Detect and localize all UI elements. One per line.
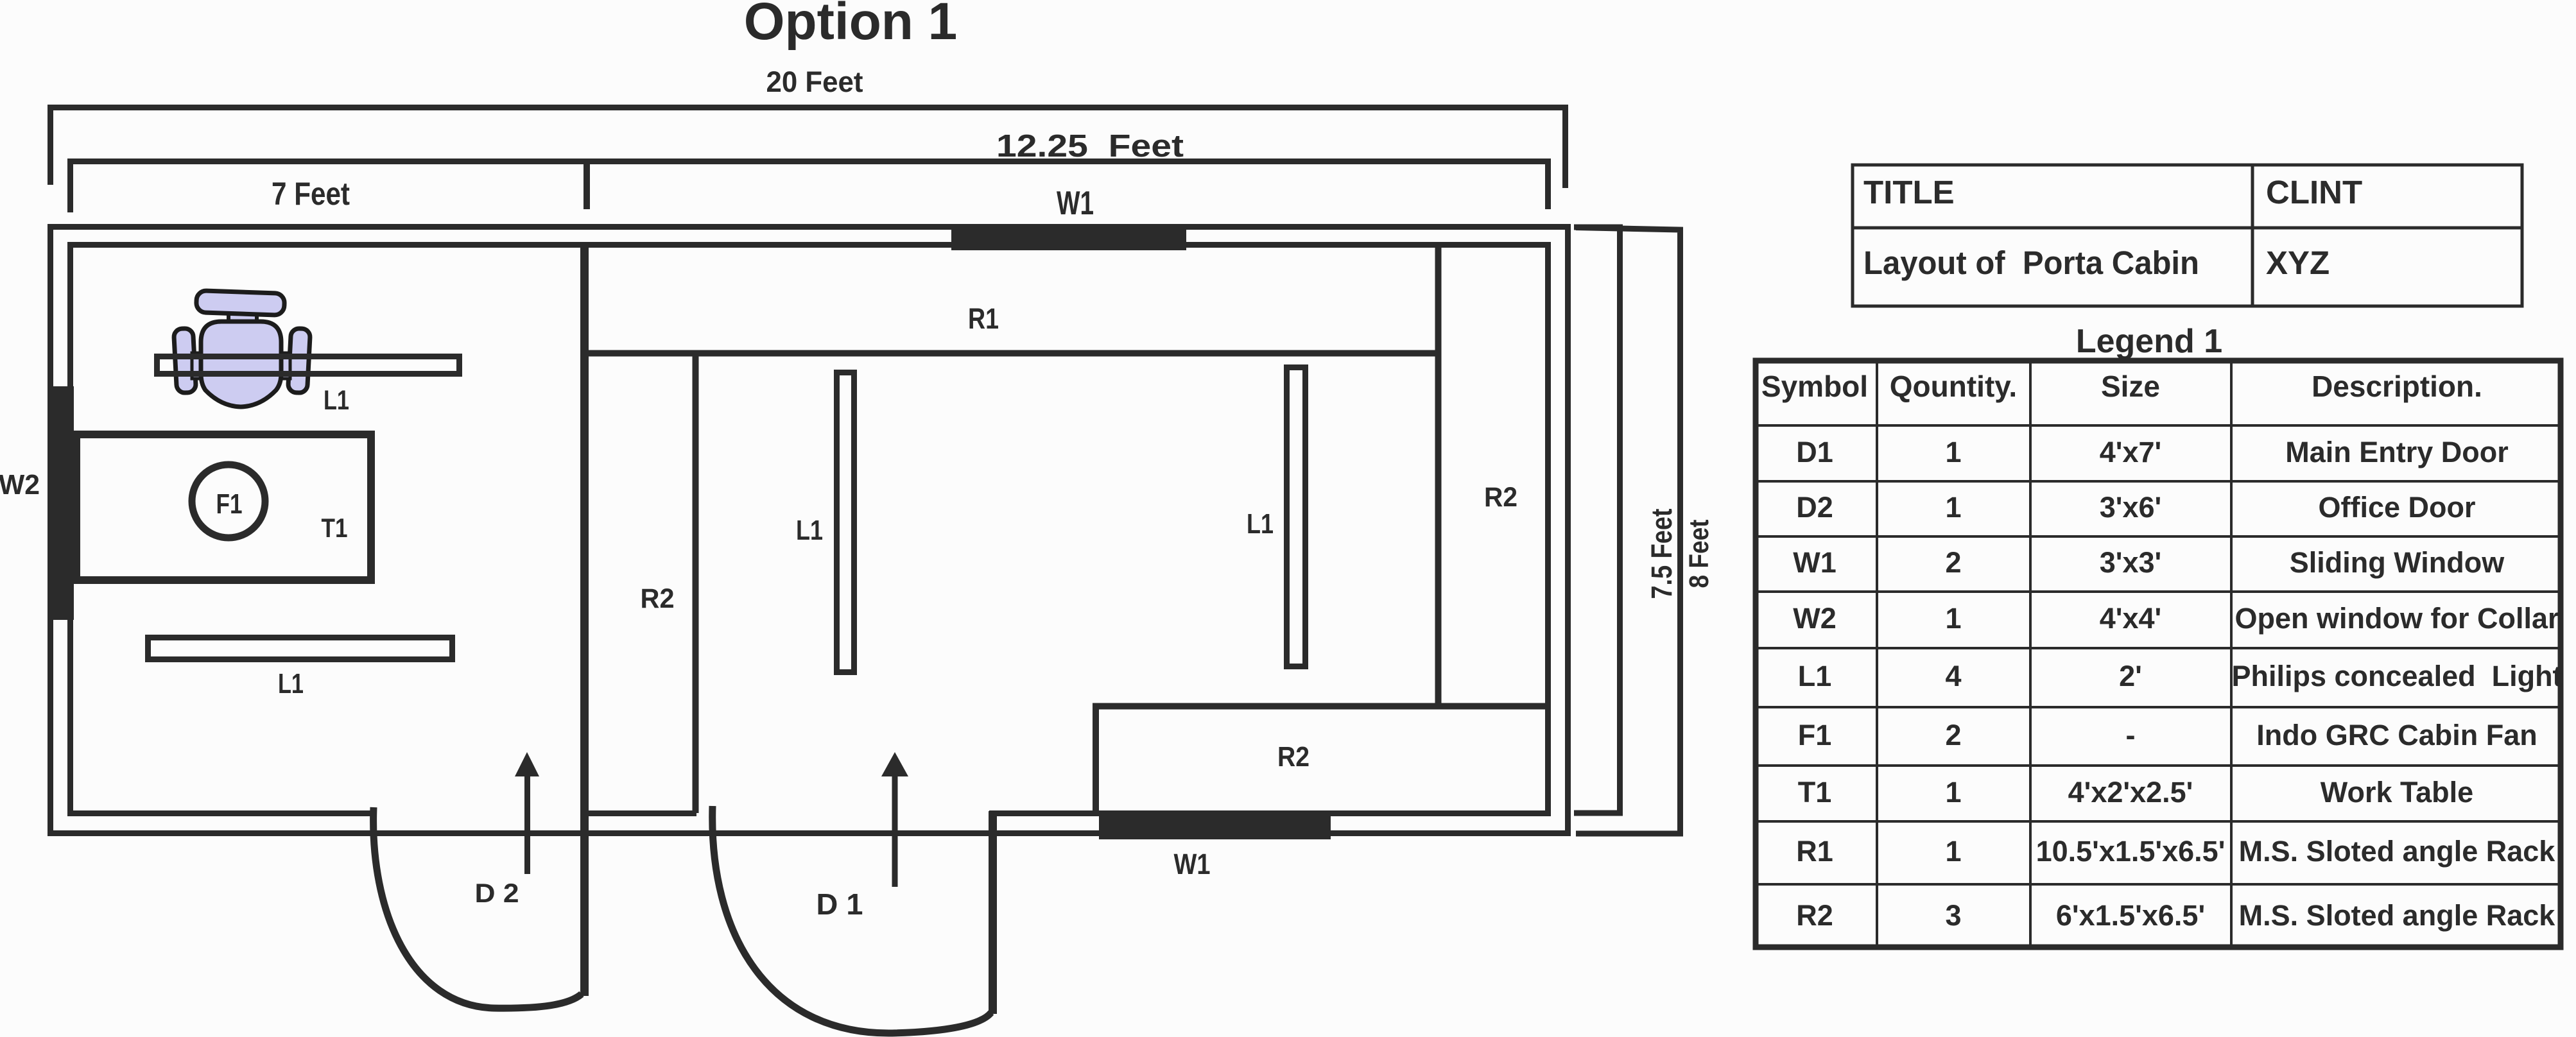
svg-text:Size: Size [2101,370,2160,403]
svg-text:D 1: D 1 [817,887,863,921]
svg-text:M.S. Sloted angle Rack: M.S. Sloted angle Rack [2239,899,2556,932]
svg-text:2': 2' [2119,660,2142,692]
svg-text:F1: F1 [216,488,243,520]
svg-text:Option 1: Option 1 [744,0,958,51]
svg-text:CLINT: CLINT [2266,174,2362,210]
svg-text:L1: L1 [1247,508,1274,540]
svg-text:4'x7': 4'x7' [2100,436,2161,468]
svg-text:8 Feet: 8 Feet [1684,520,1715,588]
svg-text:3: 3 [1945,899,1961,932]
svg-text:L1: L1 [1798,660,1832,692]
svg-text:L1: L1 [278,668,304,699]
svg-text:W1: W1 [1793,546,1837,579]
svg-text:Indo GRC Cabin Fan: Indo GRC Cabin Fan [2256,719,2537,751]
svg-text:TITLE: TITLE [1863,174,1955,210]
svg-text:W2: W2 [1793,602,1837,635]
svg-text:T1: T1 [1798,776,1832,809]
svg-text:Office Door: Office Door [2318,491,2475,524]
svg-text:Legend 1: Legend 1 [2076,323,2222,360]
svg-text:XYZ: XYZ [2266,244,2330,281]
svg-text:R2: R2 [1484,482,1517,513]
svg-text:1: 1 [1945,602,1961,635]
svg-text:2: 2 [1945,546,1961,579]
svg-text:Qountity.: Qountity. [1890,370,2017,403]
svg-text:1: 1 [1945,776,1961,809]
svg-text:2: 2 [1945,719,1961,751]
svg-text:Work Table: Work Table [2321,776,2473,809]
svg-text:Open window for Collar: Open window for Collar [2235,602,2559,635]
svg-text:R2: R2 [641,583,675,614]
svg-text:W1: W1 [1174,848,1211,880]
svg-text:6'x1.5'x6.5': 6'x1.5'x6.5' [2056,899,2205,932]
svg-text:20 Feet: 20 Feet [766,65,863,98]
svg-text:Main Entry Door: Main Entry Door [2285,436,2509,468]
svg-text:3'x3': 3'x3' [2100,546,2161,579]
svg-text:Description.: Description. [2312,370,2482,403]
svg-text:D2: D2 [1796,491,1833,524]
svg-text:12.25 Feet: 12.25 Feet [996,129,1184,164]
svg-text:L1: L1 [324,385,349,416]
svg-text:L1: L1 [796,515,823,546]
svg-text:7.5 Feet: 7.5 Feet [1645,508,1678,599]
svg-text:R1: R1 [968,302,999,335]
svg-text:W1: W1 [1057,185,1094,222]
svg-text:D1: D1 [1796,436,1833,468]
svg-text:4'x2'x2.5': 4'x2'x2.5' [2068,776,2193,809]
svg-text:Layout of Porta Cabin: Layout of Porta Cabin [1863,244,2199,281]
svg-text:4: 4 [1945,660,1961,692]
svg-text:3'x6': 3'x6' [2100,491,2161,524]
svg-text:1: 1 [1945,835,1961,868]
svg-text:W2: W2 [0,469,40,501]
svg-text:R2: R2 [1277,741,1310,773]
svg-text:F1: F1 [1798,719,1832,751]
svg-text:10.5'x1.5'x6.5': 10.5'x1.5'x6.5' [2036,835,2226,868]
svg-text:Symbol: Symbol [1761,370,1868,403]
svg-text:Philips concealed Light: Philips concealed Light [2231,660,2562,692]
svg-text:-: - [2126,719,2136,751]
svg-text:M.S. Sloted angle Rack: M.S. Sloted angle Rack [2239,835,2556,868]
svg-text:7 Feet: 7 Feet [272,176,350,212]
svg-text:1: 1 [1945,491,1961,524]
svg-text:Sliding Window: Sliding Window [2290,546,2505,579]
svg-text:4'x4': 4'x4' [2100,602,2161,635]
svg-text:D 2: D 2 [475,878,519,908]
svg-text:R1: R1 [1796,835,1833,868]
svg-text:T1: T1 [322,513,348,543]
svg-text:R2: R2 [1796,899,1833,932]
svg-text:1: 1 [1945,436,1961,468]
